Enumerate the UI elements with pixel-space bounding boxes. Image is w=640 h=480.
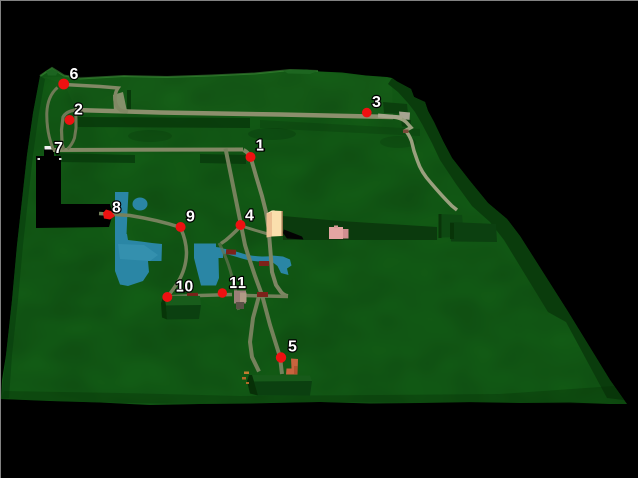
svg-text:8: 8 [112,200,121,217]
svg-text:10: 10 [176,279,194,296]
svg-text:1: 1 [256,138,265,155]
svg-text:4: 4 [245,208,254,225]
svg-text:6: 6 [70,66,79,83]
svg-text:2: 2 [74,102,83,119]
svg-text:11: 11 [229,275,246,292]
svg-text:7: 7 [54,140,63,157]
svg-text:5: 5 [288,339,297,356]
svg-text:3: 3 [372,94,381,111]
svg-text:9: 9 [186,209,195,226]
